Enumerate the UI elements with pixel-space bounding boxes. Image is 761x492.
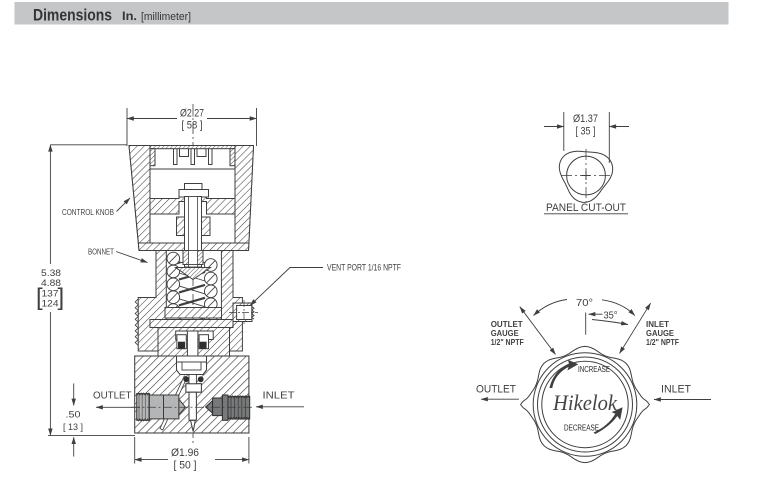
- svg-text:VENT PORT 1/16 NPTF: VENT PORT 1/16 NPTF: [327, 263, 401, 273]
- svg-text:]: ]: [58, 284, 65, 311]
- svg-text:INLET: INLET: [263, 390, 296, 402]
- svg-text:DECREASE: DECREASE: [564, 424, 599, 433]
- svg-text:OUTLET: OUTLET: [476, 384, 516, 396]
- svg-text:Dimensions: Dimensions: [33, 6, 112, 25]
- svg-text:[ 13 ]: [ 13 ]: [63, 422, 83, 433]
- svg-text:PANEL CUT-OUT: PANEL CUT-OUT: [546, 202, 626, 214]
- svg-text:CONTROL KNOB: CONTROL KNOB: [62, 207, 114, 217]
- svg-text:124: 124: [42, 299, 59, 310]
- svg-text:Ø1.96: Ø1.96: [171, 447, 199, 459]
- svg-text:Hikelok: Hikelok: [552, 390, 618, 415]
- svg-text:Ø2.27: Ø2.27: [180, 108, 204, 120]
- svg-text:OUTLET: OUTLET: [93, 390, 132, 402]
- svg-text:[ 35 ]: [ 35 ]: [576, 126, 596, 138]
- svg-text:1/2" NPTF: 1/2" NPTF: [646, 337, 679, 347]
- svg-text:[ 58 ]: [ 58 ]: [182, 120, 203, 132]
- svg-text:35°: 35°: [604, 311, 618, 322]
- svg-text:[millimeter]: [millimeter]: [141, 11, 191, 23]
- svg-text:1/2" NPTF: 1/2" NPTF: [491, 337, 524, 347]
- svg-text:70°: 70°: [576, 298, 593, 309]
- svg-text:INCREASE: INCREASE: [578, 365, 610, 374]
- svg-text:Ø1.37: Ø1.37: [573, 113, 598, 125]
- svg-text:INLET: INLET: [661, 384, 691, 396]
- svg-text:BONNET: BONNET: [88, 247, 114, 257]
- svg-text:.50: .50: [66, 410, 81, 421]
- svg-text:[: [: [36, 284, 43, 311]
- svg-text:In.: In.: [122, 11, 137, 23]
- svg-text:[ 50 ]: [ 50 ]: [174, 460, 197, 472]
